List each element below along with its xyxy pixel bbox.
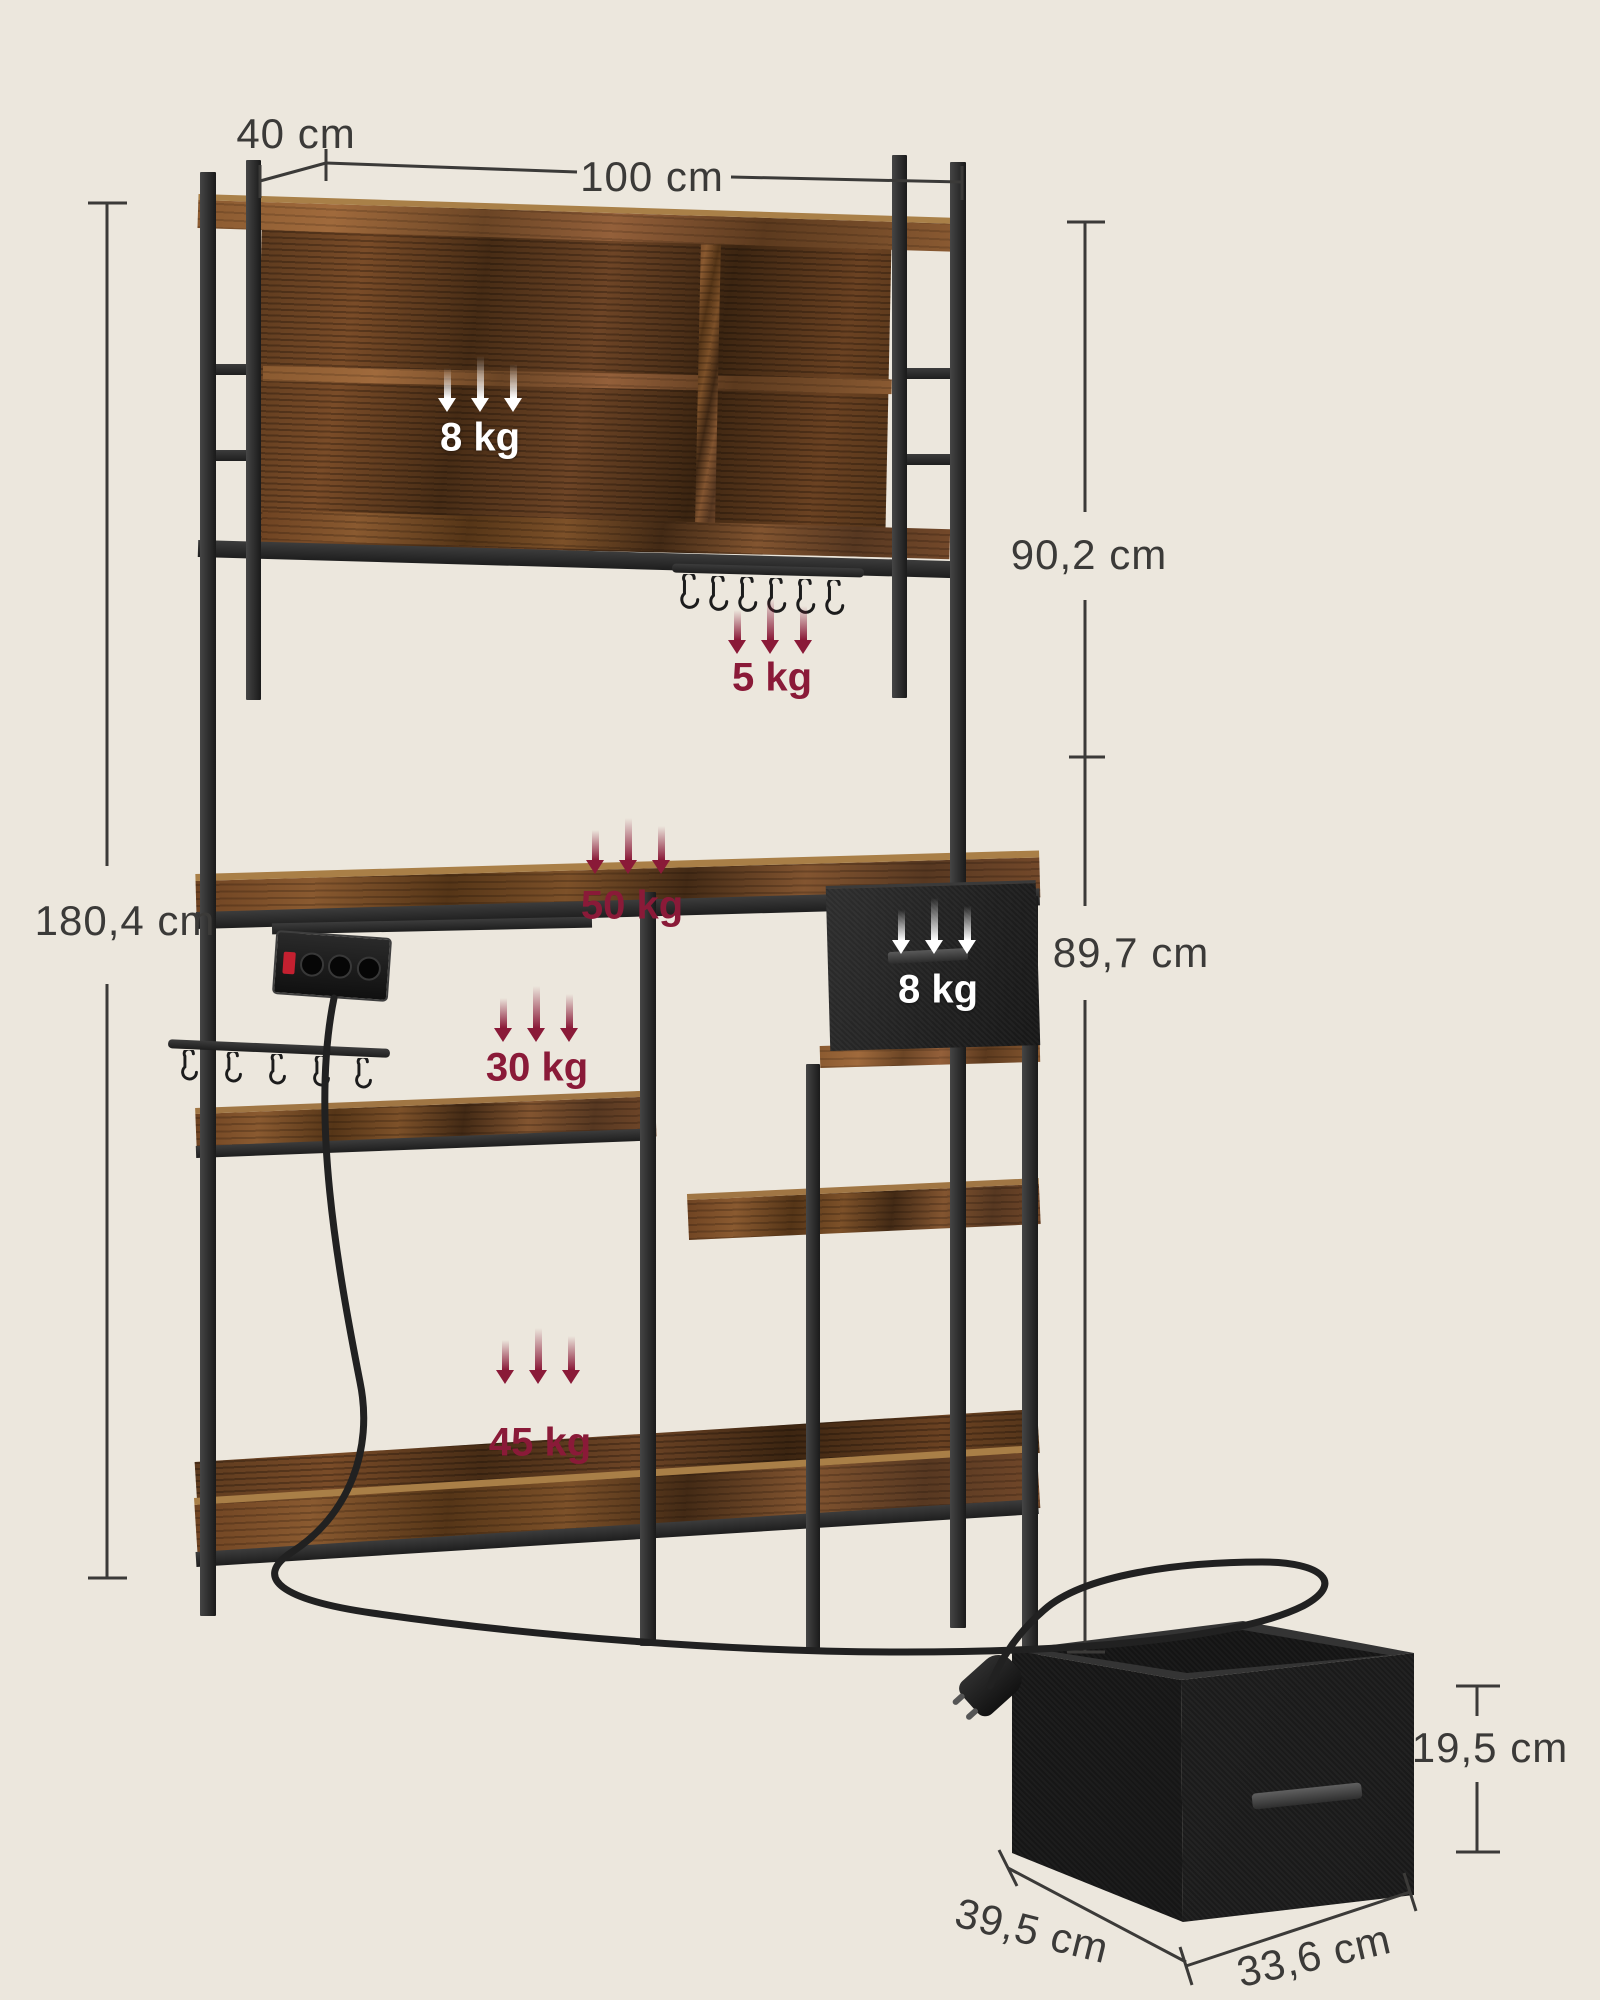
load-arrows-countertop: [586, 818, 670, 874]
load-arrows-middle-shelf: [494, 986, 578, 1042]
dimension-top-width: 100 cm: [580, 153, 724, 201]
load-bottom-shelf: 45 kg: [489, 1421, 591, 1466]
load-arrows-drawer: [892, 898, 976, 954]
dimension-line-group: [88, 149, 1500, 1985]
dimension-lines: [0, 0, 1600, 2000]
dimension-box-height: 19,5 cm: [1412, 1724, 1568, 1772]
load-countertop: 50 kg: [581, 884, 683, 929]
dimension-hutch-height: 90,2 cm: [1011, 531, 1167, 579]
dimension-base-height: 89,7 cm: [1053, 929, 1209, 977]
load-middle-shelf: 30 kg: [486, 1046, 588, 1091]
load-arrows-bottom-shelf: [496, 1328, 580, 1384]
load-arrows-hooks: [728, 598, 812, 654]
load-hooks: 5 kg: [732, 656, 812, 701]
load-arrows-hutch-shelf: [438, 356, 522, 412]
product-dimension-diagram: 40 cm 100 cm 180,4 cm 90,2 cm 89,7 cm 19…: [0, 0, 1600, 2000]
dimension-top-depth: 40 cm: [236, 110, 355, 158]
dimension-total-height: 180,4 cm: [35, 897, 216, 945]
power-cord: [275, 998, 1325, 1686]
load-hutch-shelf: 8 kg: [440, 416, 520, 461]
load-drawer: 8 kg: [898, 968, 978, 1013]
